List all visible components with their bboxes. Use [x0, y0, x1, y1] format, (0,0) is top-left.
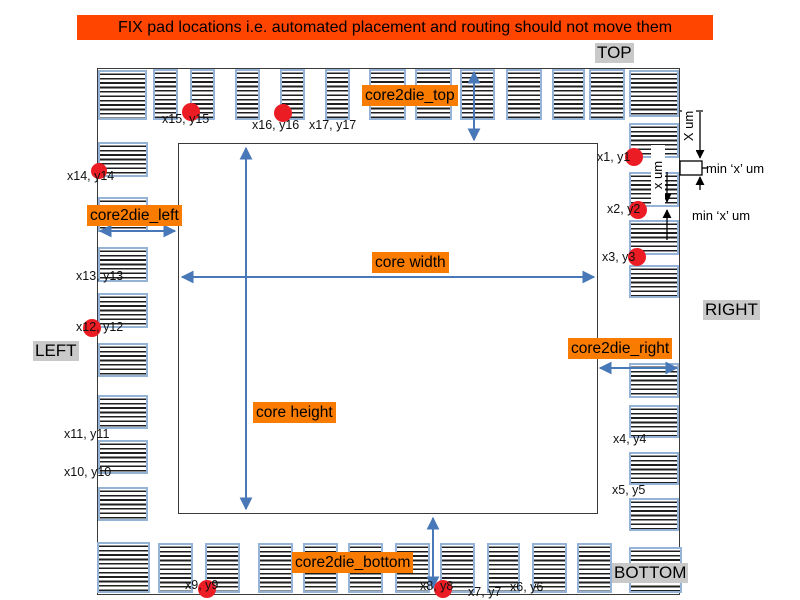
min-gap-box: [680, 161, 702, 175]
pad-placement-diagram: FIX pad locations i.e. automated placeme…: [0, 0, 800, 600]
arrows-layer: [0, 0, 800, 600]
